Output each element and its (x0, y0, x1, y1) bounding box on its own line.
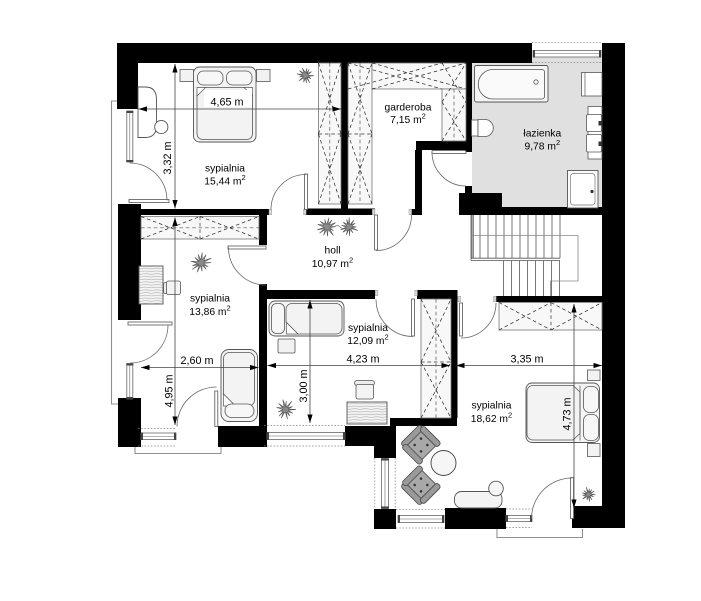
svg-text:4,95 m: 4,95 m (164, 374, 176, 407)
svg-text:4,73 m: 4,73 m (562, 397, 574, 430)
svg-text:sypialnia: sypialnia (205, 164, 245, 175)
svg-text:sypialnia: sypialnia (190, 294, 230, 305)
svg-text:holl: holl (324, 246, 340, 257)
svg-text:2,60 m: 2,60 m (180, 355, 213, 367)
svg-text:4,23 m: 4,23 m (346, 354, 379, 366)
svg-text:3,32 m: 3,32 m (162, 141, 174, 174)
svg-text:3,35 m: 3,35 m (510, 354, 543, 366)
svg-text:sypialnia: sypialnia (348, 323, 388, 334)
svg-text:sypialnia: sypialnia (471, 401, 511, 412)
svg-text:4,65 m: 4,65 m (210, 97, 243, 109)
svg-text:3,00 m: 3,00 m (298, 369, 310, 402)
